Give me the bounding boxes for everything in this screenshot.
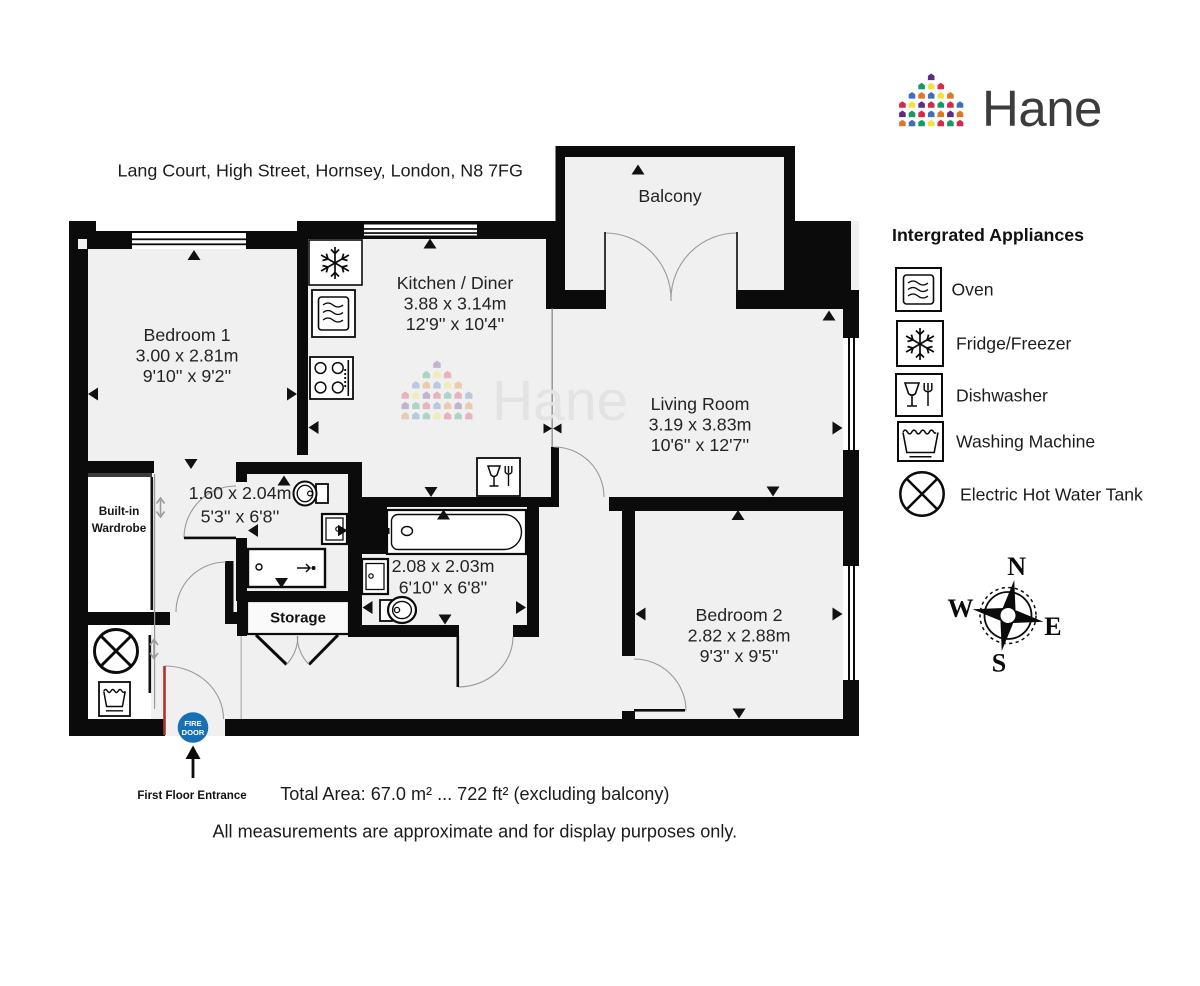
svg-text:Bedroom 1: Bedroom 1	[144, 325, 231, 345]
svg-text:1.60 x 2.04m: 1.60 x 2.04m	[189, 483, 292, 503]
svg-text:3.19 x 3.83m: 3.19 x 3.83m	[649, 415, 752, 435]
svg-text:2.82 x 2.88m: 2.82 x 2.88m	[688, 626, 791, 646]
svg-text:Electric Hot Water Tank: Electric Hot Water Tank	[960, 485, 1143, 505]
svg-text:9'10'' x 9'2'': 9'10'' x 9'2''	[143, 366, 232, 386]
svg-text:Washing Machine: Washing Machine	[956, 432, 1095, 452]
svg-text:Intergrated Appliances: Intergrated Appliances	[892, 225, 1084, 245]
svg-text:Kitchen / Diner: Kitchen / Diner	[397, 273, 514, 293]
svg-text:DOOR: DOOR	[182, 728, 205, 737]
svg-text:S: S	[992, 648, 1006, 677]
svg-text:6'10'' x 6'8'': 6'10'' x 6'8''	[399, 578, 488, 598]
svg-text:First Floor Entrance: First Floor Entrance	[137, 790, 246, 802]
svg-text:Hane: Hane	[982, 80, 1102, 137]
svg-text:Lang Court, High Street, Horns: Lang Court, High Street, Hornsey, London…	[118, 161, 523, 181]
svg-text:N: N	[1007, 552, 1026, 581]
svg-text:E: E	[1044, 612, 1061, 641]
svg-text:Dishwasher: Dishwasher	[956, 386, 1048, 406]
svg-text:Oven: Oven	[952, 280, 994, 300]
svg-text:All measurements are approxima: All measurements are approximate and for…	[212, 822, 737, 842]
svg-text:FIRE: FIRE	[184, 719, 201, 728]
svg-text:3.00 x 2.81m: 3.00 x 2.81m	[136, 346, 239, 366]
svg-text:Balcony: Balcony	[638, 186, 701, 206]
svg-text:12'9'' x 10'4'': 12'9'' x 10'4''	[406, 314, 504, 334]
svg-text:3.88 x 3.14m: 3.88 x 3.14m	[404, 294, 507, 314]
svg-text:Bedroom 2: Bedroom 2	[696, 605, 783, 625]
svg-text:2.08 x 2.03m: 2.08 x 2.03m	[392, 556, 495, 576]
svg-text:10'6'' x 12'7'': 10'6'' x 12'7''	[651, 435, 749, 455]
svg-text:Built-in: Built-in	[99, 504, 140, 518]
svg-text:Hane: Hane	[492, 369, 628, 433]
svg-text:Storage: Storage	[270, 610, 326, 627]
svg-text:Total Area: 67.0 m² ... 722 ft: Total Area: 67.0 m² ... 722 ft² (excludi…	[280, 784, 669, 804]
svg-text:5'3'' x 6'8'': 5'3'' x 6'8''	[201, 507, 280, 527]
svg-text:Living Room: Living Room	[651, 394, 750, 414]
svg-text:Wardrobe: Wardrobe	[92, 521, 147, 535]
svg-text:W: W	[948, 594, 974, 623]
svg-text:Fridge/Freezer: Fridge/Freezer	[956, 334, 1072, 354]
svg-text:9'3'' x 9'5'': 9'3'' x 9'5''	[700, 646, 779, 666]
